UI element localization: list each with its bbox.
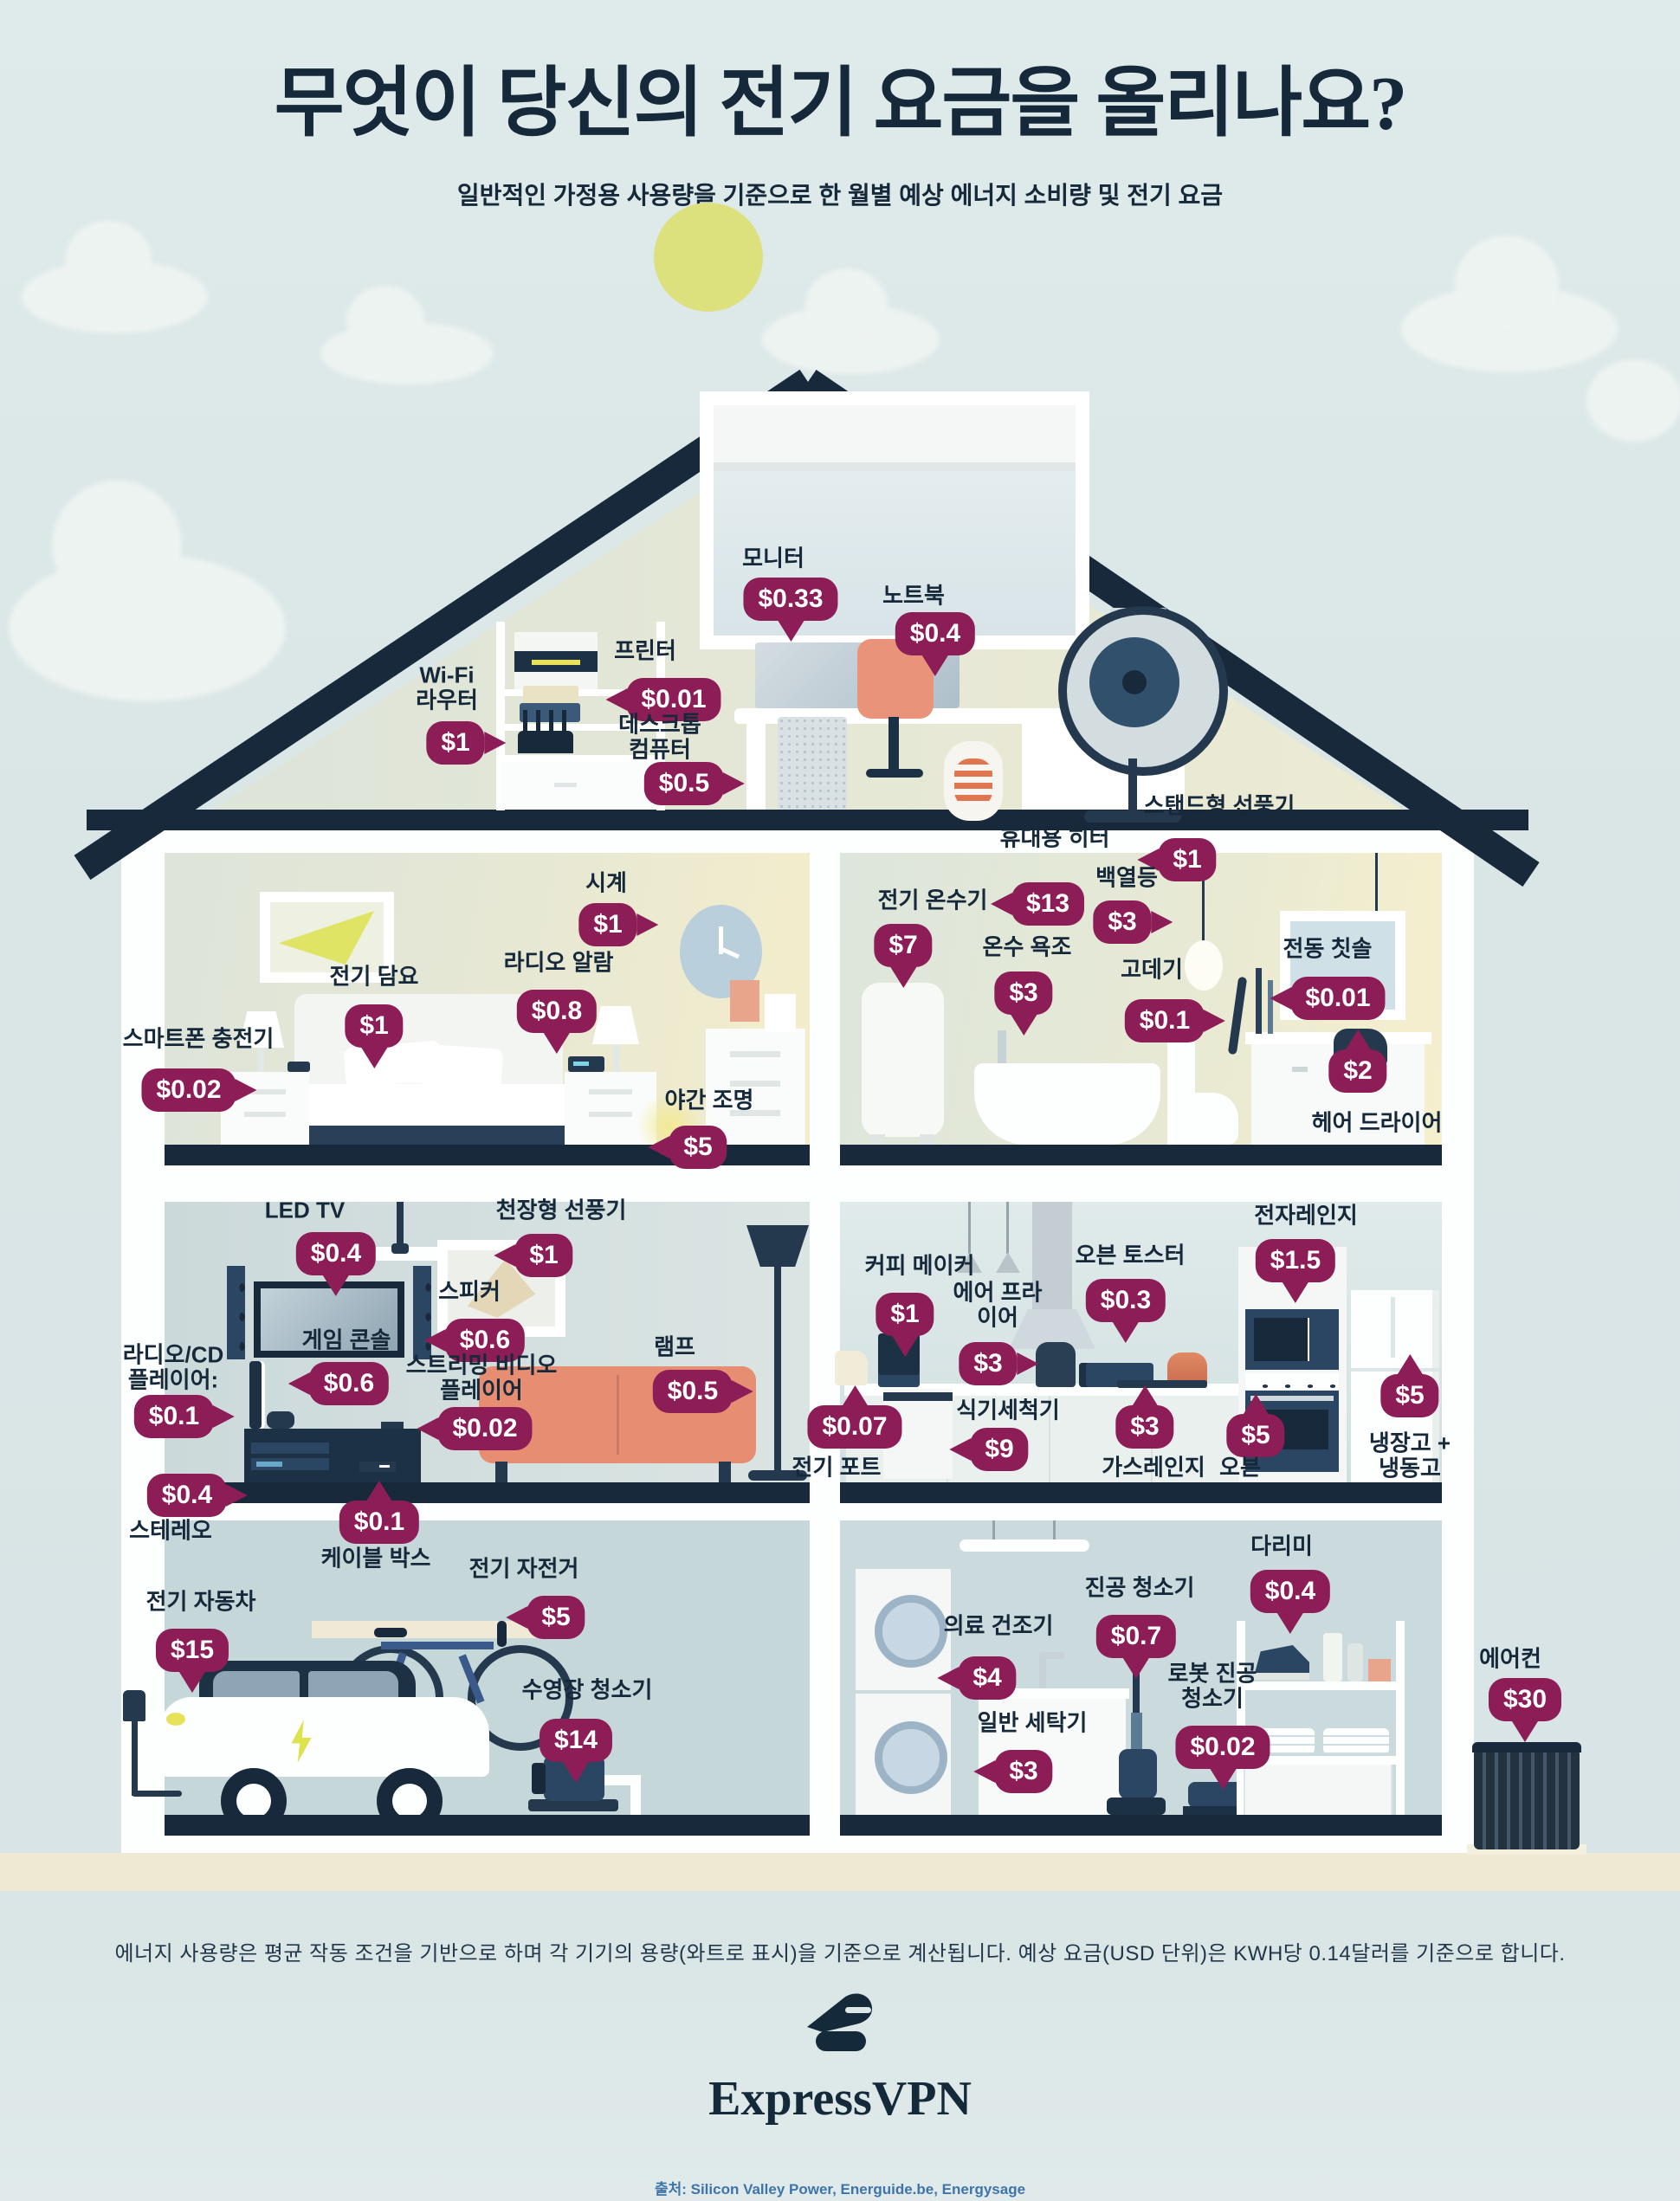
water-heater-tank [862, 983, 944, 1137]
charging-plug [123, 1690, 145, 1721]
nightstand-drawer [589, 1089, 632, 1094]
label-electric-water-heater: 전기 온수기 [878, 887, 988, 913]
ceiling-light-bar [960, 1539, 1089, 1552]
label-speakers: 스피커 [438, 1279, 501, 1304]
media-console [244, 1429, 421, 1482]
disclaimer-text: 에너지 사용량은 평균 작동 조건을 기반으로 하며 각 기기의 용량(와트로 … [0, 1936, 1680, 1966]
pendant-bulb [1185, 940, 1223, 991]
badge-iron: $0.4 [1250, 1570, 1330, 1613]
ceiling-fan-hub [391, 1243, 409, 1254]
badge-streaming-player: $0.02 [437, 1407, 532, 1450]
pendant-cord [968, 1202, 971, 1254]
stereo-display [256, 1462, 282, 1467]
toilet-bowl [1167, 1093, 1238, 1145]
shelf-board [1237, 1681, 1405, 1690]
badge-radio-alarm: $0.8 [517, 990, 597, 1033]
badge-hair-straightener: $0.1 [1125, 999, 1205, 1042]
water-heater-foot [871, 1134, 885, 1145]
faucet [1039, 1652, 1065, 1659]
label-dishwasher: 식기세척기 [956, 1397, 1060, 1423]
badge-oven: $5 [1226, 1414, 1284, 1457]
floor-band [840, 1145, 1442, 1165]
window-shade [714, 405, 1076, 466]
stereo-deck [251, 1443, 329, 1454]
label-electric-car: 전기 자동차 [146, 1589, 256, 1614]
car-headlight [166, 1713, 185, 1726]
label-hair-straightener: 고데기 [1121, 957, 1183, 982]
dresser-drawer [730, 1081, 780, 1087]
badge-dishwasher: $9 [970, 1428, 1028, 1471]
badge-electric-water-heater: $7 [874, 924, 932, 967]
label-coffee-maker: 커피 메이커 [865, 1253, 975, 1278]
pc-tower [778, 717, 847, 810]
pool-pump-base [528, 1799, 618, 1811]
bed-mattress [286, 1084, 572, 1127]
badge-portable-heater: $13 [1011, 882, 1084, 926]
badge-cable-box: $0.1 [339, 1501, 419, 1544]
badge-clothes-dryer: $4 [958, 1656, 1016, 1700]
brand-wordmark: ExpressVPN [0, 2071, 1680, 2127]
window-shade-bar [714, 462, 1076, 471]
detergent-bottle [1347, 1643, 1363, 1681]
stand-fan-pole [1128, 758, 1137, 814]
label-streaming-player: 스트리밍 비디오 플레이어 [406, 1353, 558, 1404]
cable-box-device [359, 1462, 396, 1472]
badge-stand-fan: $1 [1158, 838, 1216, 881]
bike-frame [381, 1642, 494, 1649]
badge-desktop-computer: $0.5 [644, 762, 724, 805]
badge-electric-toothbrush: $0.01 [1290, 977, 1385, 1020]
label-led-tv: LED TV [265, 1197, 345, 1223]
detergent-bottle [1323, 1633, 1342, 1681]
vacuum-head [1107, 1798, 1166, 1815]
badge-game-console: $0.6 [309, 1362, 389, 1405]
car-body [160, 1697, 489, 1777]
label-oven-toaster: 오븐 토스터 [1076, 1242, 1186, 1268]
attic-cabinet-handle [554, 783, 577, 787]
badge-coffee-maker: $1 [876, 1293, 934, 1336]
badge-air-fryer: $3 [959, 1342, 1017, 1385]
ac-top-cap [1472, 1742, 1581, 1752]
label-game-console: 게임 콘솔 [302, 1327, 391, 1352]
label-robot-vacuum: 로봇 진공 청소기 [1168, 1662, 1257, 1713]
label-electric-bike: 전기 자전거 [469, 1556, 579, 1581]
label-pool-cleaner: 수영장 청소기 [522, 1677, 653, 1702]
label-hot-tub: 온수 욕조 [983, 934, 1072, 959]
fridge-handle [1391, 1297, 1395, 1358]
streaming-box-device [381, 1422, 404, 1429]
attic-cabinet [501, 762, 660, 810]
badge-fridge-freezer: $5 [1380, 1374, 1438, 1417]
charging-cable [132, 1791, 182, 1797]
electric-kettle-device [835, 1351, 868, 1385]
bathtub [974, 1063, 1160, 1145]
dresser-drawer [730, 1051, 780, 1057]
wifi-router [518, 731, 573, 753]
radio-alarm-display [573, 1062, 589, 1066]
label-portable-heater: 휴대용 히터 [1000, 825, 1110, 850]
gas-range-burners [1117, 1380, 1207, 1388]
badge-hot-tub: $3 [994, 971, 1052, 1015]
washer-door [875, 1721, 947, 1794]
speaker-column [227, 1266, 245, 1359]
badge-oven-toaster: $0.3 [1086, 1279, 1166, 1322]
label-night-light: 야간 조명 [665, 1088, 754, 1113]
label-vacuum-cleaner: 진공 청소기 [1085, 1575, 1195, 1600]
label-smartphone-charger: 스마트폰 충전기 [123, 1026, 275, 1051]
dishwasher-controls [883, 1392, 953, 1401]
badge-microwave: $1.5 [1256, 1239, 1335, 1282]
badge-hair-dryer: $2 [1328, 1049, 1386, 1093]
photo-frame [765, 994, 796, 1032]
label-electric-blanket: 전기 담요 [330, 964, 419, 989]
label-radio-cd-player: 라디오/CD 플레이어: [123, 1343, 224, 1394]
nightstand-drawer [244, 1112, 286, 1117]
label-electric-toothbrush: 전동 칫솔 [1283, 936, 1373, 961]
source-text: 출처: Silicon Valley Power, Energuide.be, … [0, 2177, 1680, 2198]
sofa-leg [719, 1462, 731, 1482]
books [523, 686, 578, 703]
game-console-device [249, 1361, 265, 1429]
label-washing-machine: 일반 세탁기 [978, 1710, 1088, 1735]
router-antenna [523, 710, 527, 731]
label-gas-range: 가스레인지 [1102, 1455, 1205, 1480]
label-cable-box: 케이블 박스 [321, 1546, 431, 1571]
office-chair-base [866, 769, 923, 778]
badge-air-conditioner: $30 [1489, 1678, 1561, 1721]
printer-paper [532, 660, 580, 665]
label-air-conditioner: 에어컨 [1479, 1646, 1541, 1671]
bed-base [286, 1126, 572, 1145]
label-iron: 다리미 [1250, 1533, 1313, 1559]
pendant-cord [1006, 1202, 1009, 1254]
router-antenna [536, 710, 540, 731]
desk-leg [746, 724, 766, 810]
ceiling-fan-rod [397, 1202, 404, 1249]
shelf-post [1396, 1621, 1405, 1815]
air-fryer-device [1036, 1342, 1076, 1387]
label-oven: 오븐 [1219, 1455, 1261, 1480]
water-heater-foot [920, 1134, 934, 1145]
electric-toothbrush-device [1256, 968, 1262, 1034]
bathtub-faucet [998, 1030, 1006, 1067]
label-stereo: 스테레오 [129, 1518, 212, 1543]
label-electric-kettle: 전기 포트 [792, 1455, 882, 1480]
floor-lamp-pole [774, 1266, 781, 1474]
label-desktop-computer: 데스크톱 컴퓨터 [618, 713, 701, 764]
badge-wifi-router: $1 [426, 721, 484, 765]
game-controller [267, 1411, 294, 1429]
oven-controls [1245, 1373, 1339, 1389]
badge-radio-cd-player: $0.1 [134, 1395, 214, 1438]
cable-box-light [379, 1465, 390, 1468]
label-printer: 프린터 [614, 638, 676, 663]
iron-sole [1254, 1673, 1309, 1680]
badge-clock: $1 [578, 903, 636, 946]
nightstand-drawer [589, 1112, 632, 1117]
label-air-fryer: 에어 프라 이어 [953, 1281, 1043, 1332]
bike-seat [374, 1628, 407, 1637]
expressvpn-logo-icon [797, 1986, 883, 2062]
stand-fan-hub [1122, 670, 1147, 694]
badge-monitor: $0.33 [743, 578, 837, 621]
router-antenna [562, 710, 566, 731]
dryer-door [875, 1595, 947, 1668]
badge-night-light: $5 [669, 1126, 727, 1169]
floor-band [840, 1815, 1442, 1836]
badge-electric-kettle: $0.07 [807, 1405, 901, 1449]
office-chair-post [888, 717, 899, 771]
charging-cable [132, 1721, 138, 1796]
label-fridge-freezer: 냉장고 + 냉동고 [1369, 1431, 1451, 1482]
badge-electric-blanket: $1 [345, 1004, 403, 1048]
badge-robot-vacuum: $0.02 [1175, 1726, 1270, 1769]
router-antenna [549, 710, 553, 731]
badge-lamp: $0.5 [653, 1370, 733, 1413]
ground-band [0, 1853, 1680, 1891]
pool-pump-cap [532, 1763, 546, 1794]
label-radio-alarm: 라디오 알람 [504, 950, 614, 975]
badge-vacuum-cleaner: $0.7 [1096, 1615, 1176, 1658]
photo-frame [730, 980, 759, 1022]
badge-washing-machine: $3 [994, 1750, 1052, 1793]
badge-stereo: $0.4 [147, 1474, 227, 1517]
label-hair-dryer: 헤어 드라이어 [1312, 1110, 1443, 1135]
vacuum-body [1119, 1749, 1157, 1799]
heater-coil [954, 758, 992, 807]
sofa-leg [495, 1462, 507, 1482]
badge-pool-cleaner: $14 [540, 1719, 612, 1762]
vanity-door-handle [1292, 1067, 1308, 1072]
sofa-split [617, 1375, 619, 1455]
badge-gas-range: $3 [1115, 1405, 1173, 1449]
floor-band [840, 1482, 1442, 1503]
badge-electric-car: $15 [156, 1629, 229, 1672]
box [1368, 1659, 1391, 1681]
label-lamp: 램프 [654, 1334, 695, 1359]
floor-band [165, 1815, 810, 1836]
fridge-split [1351, 1368, 1439, 1372]
badge-laptop: $0.4 [895, 612, 975, 655]
air-conditioner-unit [1474, 1749, 1580, 1849]
towels [1323, 1728, 1389, 1754]
bed-pillow [404, 1042, 504, 1089]
label-clothes-dryer: 의료 건조기 [944, 1613, 1054, 1638]
label-laptop: 노트북 [882, 583, 945, 608]
badge-electric-bike: $5 [527, 1596, 585, 1639]
table-lamp-stem [613, 1044, 619, 1072]
laundry-cabinet [1244, 1765, 1392, 1815]
badge-led-tv: $0.4 [296, 1232, 376, 1275]
faucet [1039, 1657, 1046, 1688]
label-wifi-router: Wi-Fi 라우터 [416, 663, 478, 714]
smartphone [288, 1062, 310, 1072]
label-clock: 시계 [585, 870, 627, 895]
badge-ceiling-fan: $1 [514, 1234, 572, 1277]
microwave-window [1254, 1318, 1309, 1361]
label-ceiling-fan: 천장형 선풍기 [496, 1197, 627, 1223]
label-monitor: 모니터 [742, 545, 804, 571]
floor-band [165, 1482, 810, 1503]
infographic-canvas: 무엇이 당신의 전기 요금을 올리나요? 일반적인 가정용 사용량을 기준으로 … [0, 0, 1680, 2201]
label-stand-fan: 스탠드형 선풍기 [1144, 793, 1296, 818]
badge-smartphone-charger: $0.02 [141, 1068, 236, 1112]
label-microwave: 전자레인지 [1254, 1203, 1358, 1228]
badge-incandescent-bulb: $3 [1093, 900, 1151, 944]
pool-pipe [630, 1775, 641, 1817]
label-incandescent-bulb: 백열등 [1095, 865, 1158, 890]
